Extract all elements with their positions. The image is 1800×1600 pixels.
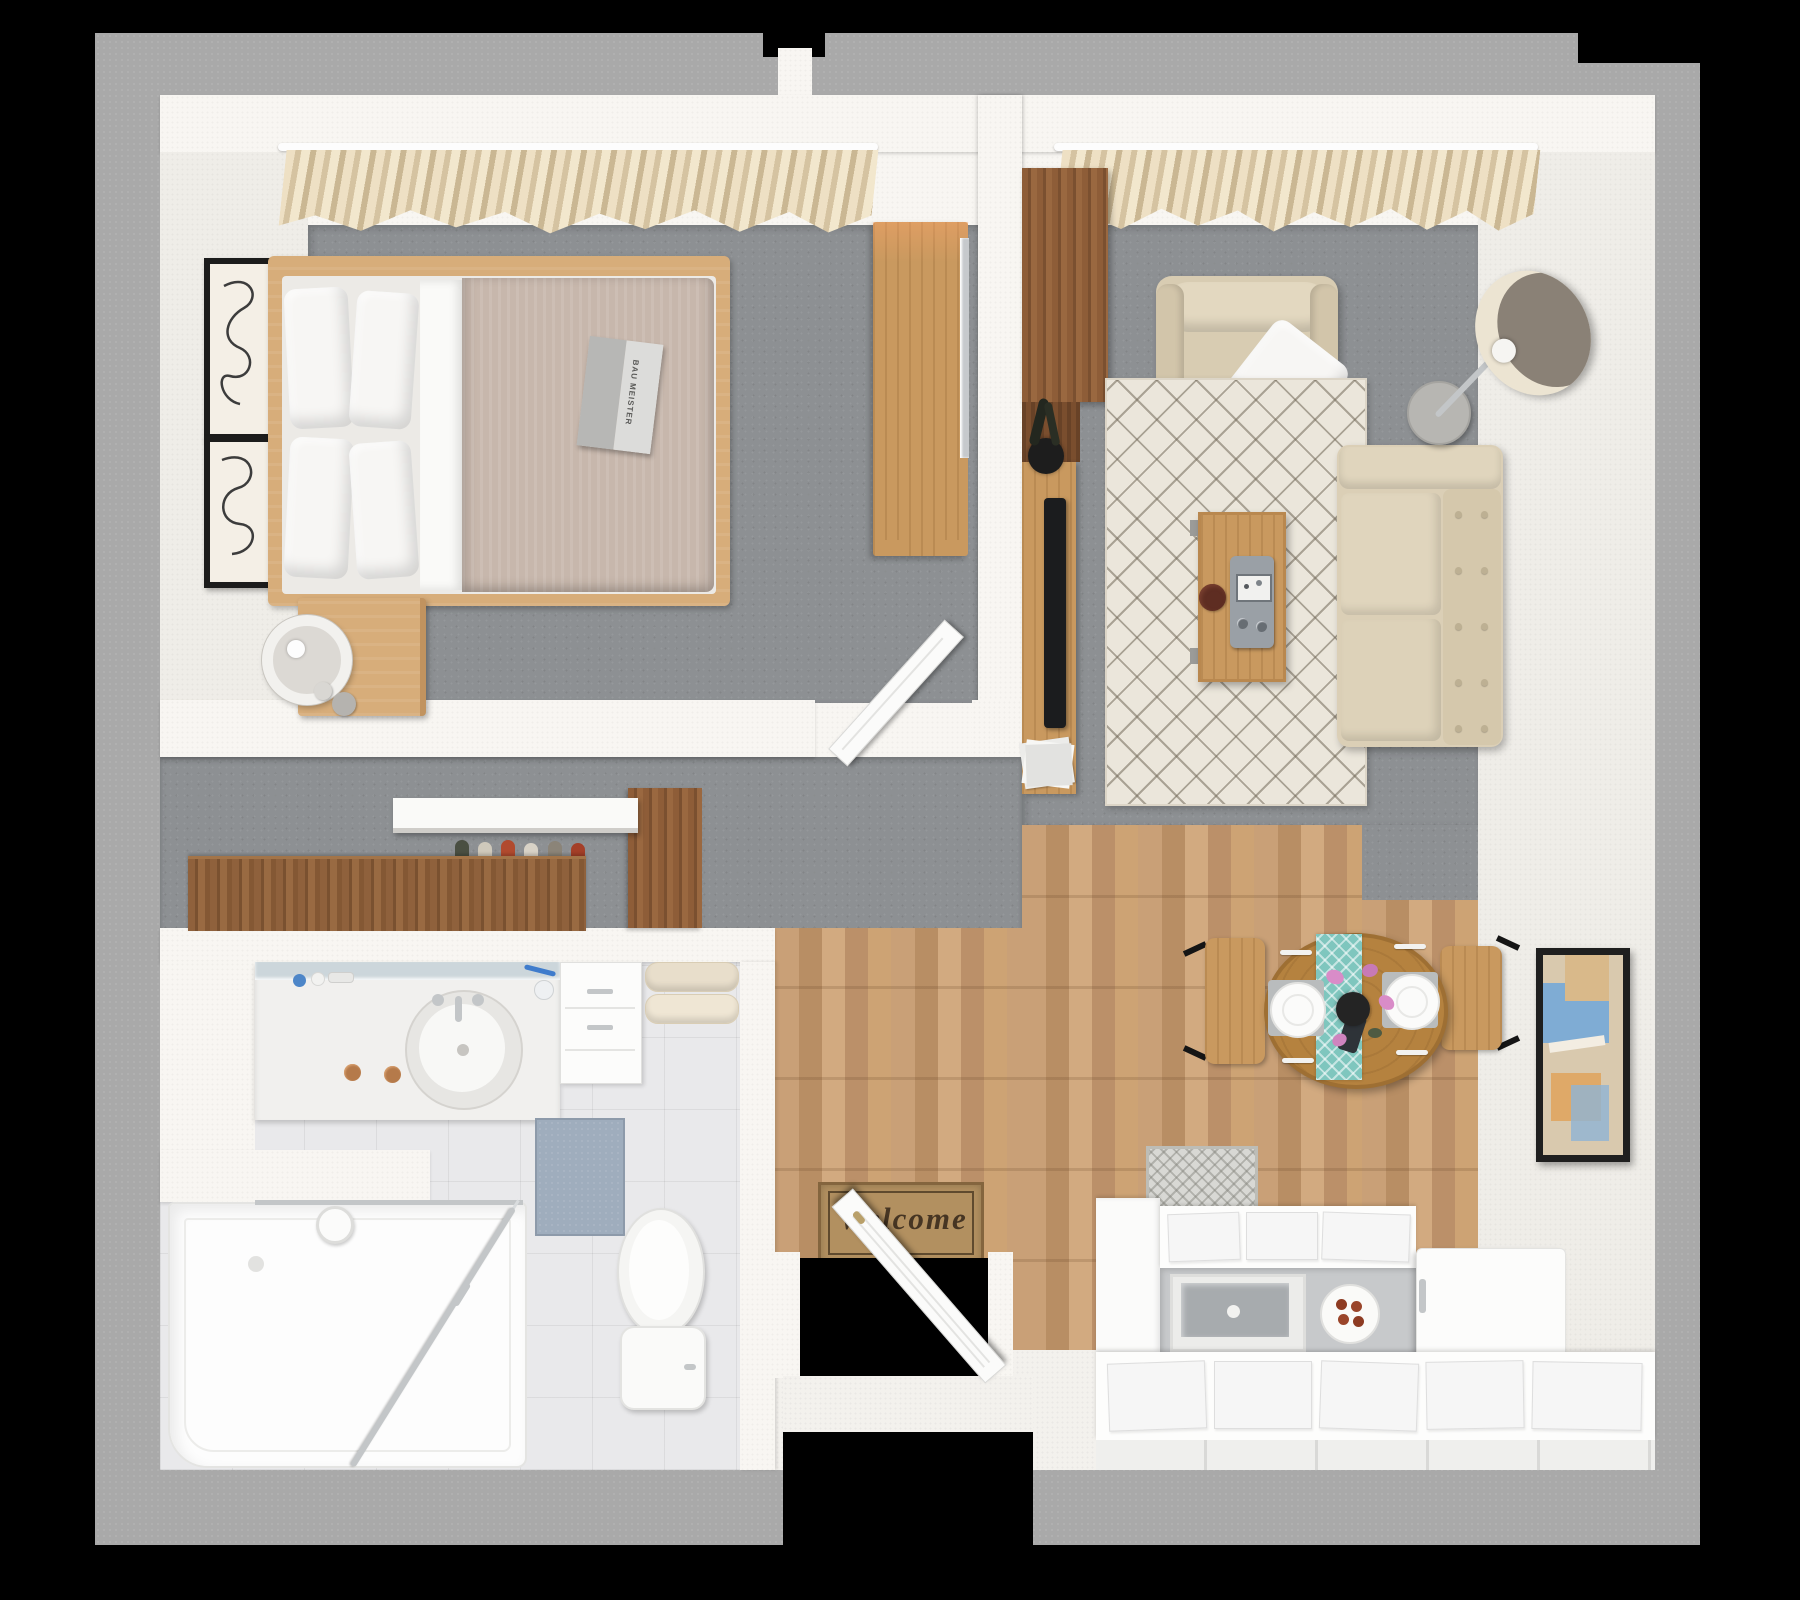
flower-vase [1336,992,1370,1026]
magazine [1025,743,1072,787]
cabinet-door [1246,1212,1318,1260]
cabinet-door [1425,1360,1524,1430]
plate-of-cookies [1320,1284,1380,1344]
armchair-back-roll [1164,282,1330,332]
wall-hall-bottom [160,928,775,962]
cabinet-door [1107,1360,1207,1431]
curtain-rod-bedroom [278,143,878,151]
wall-bedroom-bottom-left [160,700,815,757]
towel-roll [645,994,739,1024]
toilet-lid-inner [629,1220,689,1320]
toilet-tank [620,1326,706,1410]
tuft-button [1455,567,1462,574]
door-threshold [783,1376,1033,1432]
door-jamb-left [775,1252,800,1378]
curtain-rod-living [1054,143,1538,151]
plate-inner-ring [1282,994,1314,1026]
table-lamp [262,615,352,705]
sink-basin [405,990,523,1110]
bed-pillow [348,440,419,580]
living-carpet-step [1362,825,1478,900]
screen-dot [1244,584,1249,589]
counter-upper-run [1160,1206,1416,1268]
tuft-button [1455,679,1462,686]
wall-shelf [393,798,638,833]
bed-pillow [283,286,354,429]
door-handle [852,1210,866,1225]
book-on-bed: BAU MEISTER [577,336,664,454]
kitchen-wall-art [1536,948,1630,1162]
cabinet-door [1167,1212,1241,1262]
drawer-handle [587,989,613,994]
faucet-handle [432,994,444,1006]
sofa-seat-cushion [1341,493,1441,615]
cabinet-door [1214,1361,1312,1429]
bath-mat [535,1118,625,1236]
dining-chair [1205,938,1265,1064]
wall-bathroom-right [740,962,775,1470]
device-screen [1236,574,1272,602]
dresser-foot [877,540,899,556]
deco-ball-small [314,682,332,700]
screen-dot [1256,580,1262,586]
counter-front-face [1096,1440,1655,1470]
cabinet-door [1531,1361,1642,1431]
tuft-button [1455,511,1462,518]
device-knob [1237,618,1248,629]
flat-tv [1044,498,1066,728]
sofa-tufted-back [1443,489,1501,745]
device-knob [1256,621,1267,632]
bathroom-cup [534,980,554,1000]
roof-notch-top-right [1578,33,1700,63]
storage-cabinet [560,962,642,1084]
sink-drain [457,1044,469,1056]
bed-pillow [283,436,354,579]
fridge-latch [1419,1279,1426,1313]
toilet-seat [617,1208,705,1336]
tray-inner-line [184,1218,511,1452]
shower-glass-top-rail [255,1200,523,1205]
drawer-handle [587,1025,613,1030]
cabinet-door [1319,1360,1419,1431]
bed-sheet-fold [420,280,466,590]
cookie [1338,1314,1349,1325]
magazine-stack [1020,736,1076,792]
shower-knob-copper [344,1064,361,1081]
tall-cabinet [1022,168,1108,402]
shower-knob-copper [384,1066,401,1083]
glass-front-oven [1170,1274,1306,1352]
dresser-lamp-glow [873,222,968,262]
fork [1396,1050,1428,1055]
tuft-button [1481,511,1488,518]
counter-lower-run [1096,1352,1655,1440]
cabinet-door [1321,1211,1411,1262]
lamp-hub [287,640,305,658]
tuft-button [1481,623,1488,630]
drawer-line [565,1007,635,1009]
dining-chair [1440,946,1502,1050]
dinner-plate [1270,982,1326,1038]
toiletry-bottle-blue [293,974,306,987]
flower-leaf [1368,1028,1382,1038]
deco-ball-large [332,692,356,716]
sofa-seat-cushion [1341,619,1441,741]
radio-device [1230,556,1274,648]
plate-inner-ring [1396,986,1428,1018]
abstract-squiggle-icon [210,264,264,422]
shower-drain [248,1256,264,1272]
tuft-button [1481,725,1488,732]
leaning-mirror [960,238,969,458]
entry-porch-notch [783,1432,1033,1600]
oven-knob [1227,1305,1240,1318]
cookie [1353,1316,1364,1327]
tuft-button [1455,725,1462,732]
faucet [455,996,462,1022]
flush-button [684,1364,696,1370]
appliance-strip [1160,1268,1416,1352]
towel-roll [645,962,739,992]
cookie [1351,1301,1362,1312]
tuft-button [1455,623,1462,630]
wall-divider-bedroom-living [978,95,1022,703]
counter-corner [1096,1198,1160,1352]
bathroom-inner-wall-strip [160,1150,430,1202]
fork [1282,1058,1314,1063]
floor-plan-canvas: BAU MEISTER [0,0,1800,1600]
abstract-squiggle-icon [210,442,264,570]
bowl [1199,584,1226,611]
shower-tray [168,1202,527,1468]
tuft-button [1481,567,1488,574]
sofa [1337,445,1503,747]
tuft-button [1481,679,1488,686]
toiletry-bottle-white [311,972,325,986]
bed-pillow [348,290,419,430]
cookie [1336,1299,1347,1310]
spoon [1280,950,1312,955]
wardrobe-block [628,788,702,928]
art-blue-block [1571,1085,1609,1141]
sofa-arm-top [1339,447,1501,489]
toiletry-tube [328,972,354,983]
wall-bedroom-bottom-stub [972,700,1022,757]
art-tan-block [1565,955,1609,1001]
shower-head [316,1206,354,1244]
dresser [873,222,968,556]
walnut-sideboard [188,856,586,931]
drawer-line [565,1049,635,1051]
faucet-handle [472,994,484,1006]
spoon [1394,944,1426,949]
dresser-foot [943,540,965,556]
